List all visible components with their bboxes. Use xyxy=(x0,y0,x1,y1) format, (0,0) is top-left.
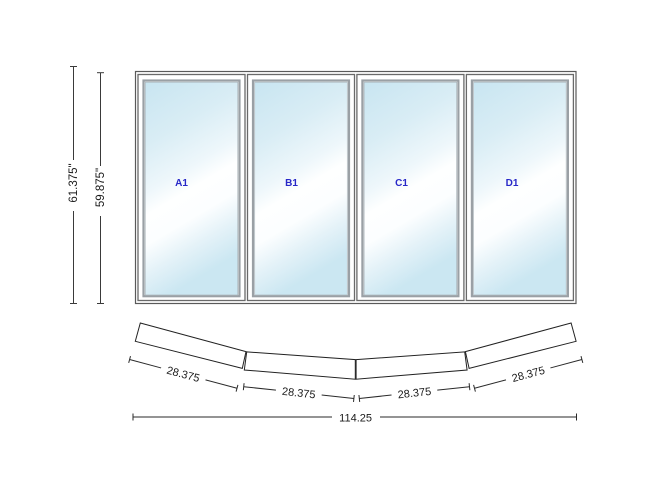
svg-text:C1: C1 xyxy=(395,178,408,189)
svg-text:B1: B1 xyxy=(285,178,298,189)
svg-text:D1: D1 xyxy=(506,178,519,189)
svg-text:59.875": 59.875" xyxy=(95,168,107,207)
svg-text:A1: A1 xyxy=(175,178,188,189)
svg-text:114.25: 114.25 xyxy=(339,413,372,425)
svg-text:61.375": 61.375" xyxy=(68,163,80,202)
